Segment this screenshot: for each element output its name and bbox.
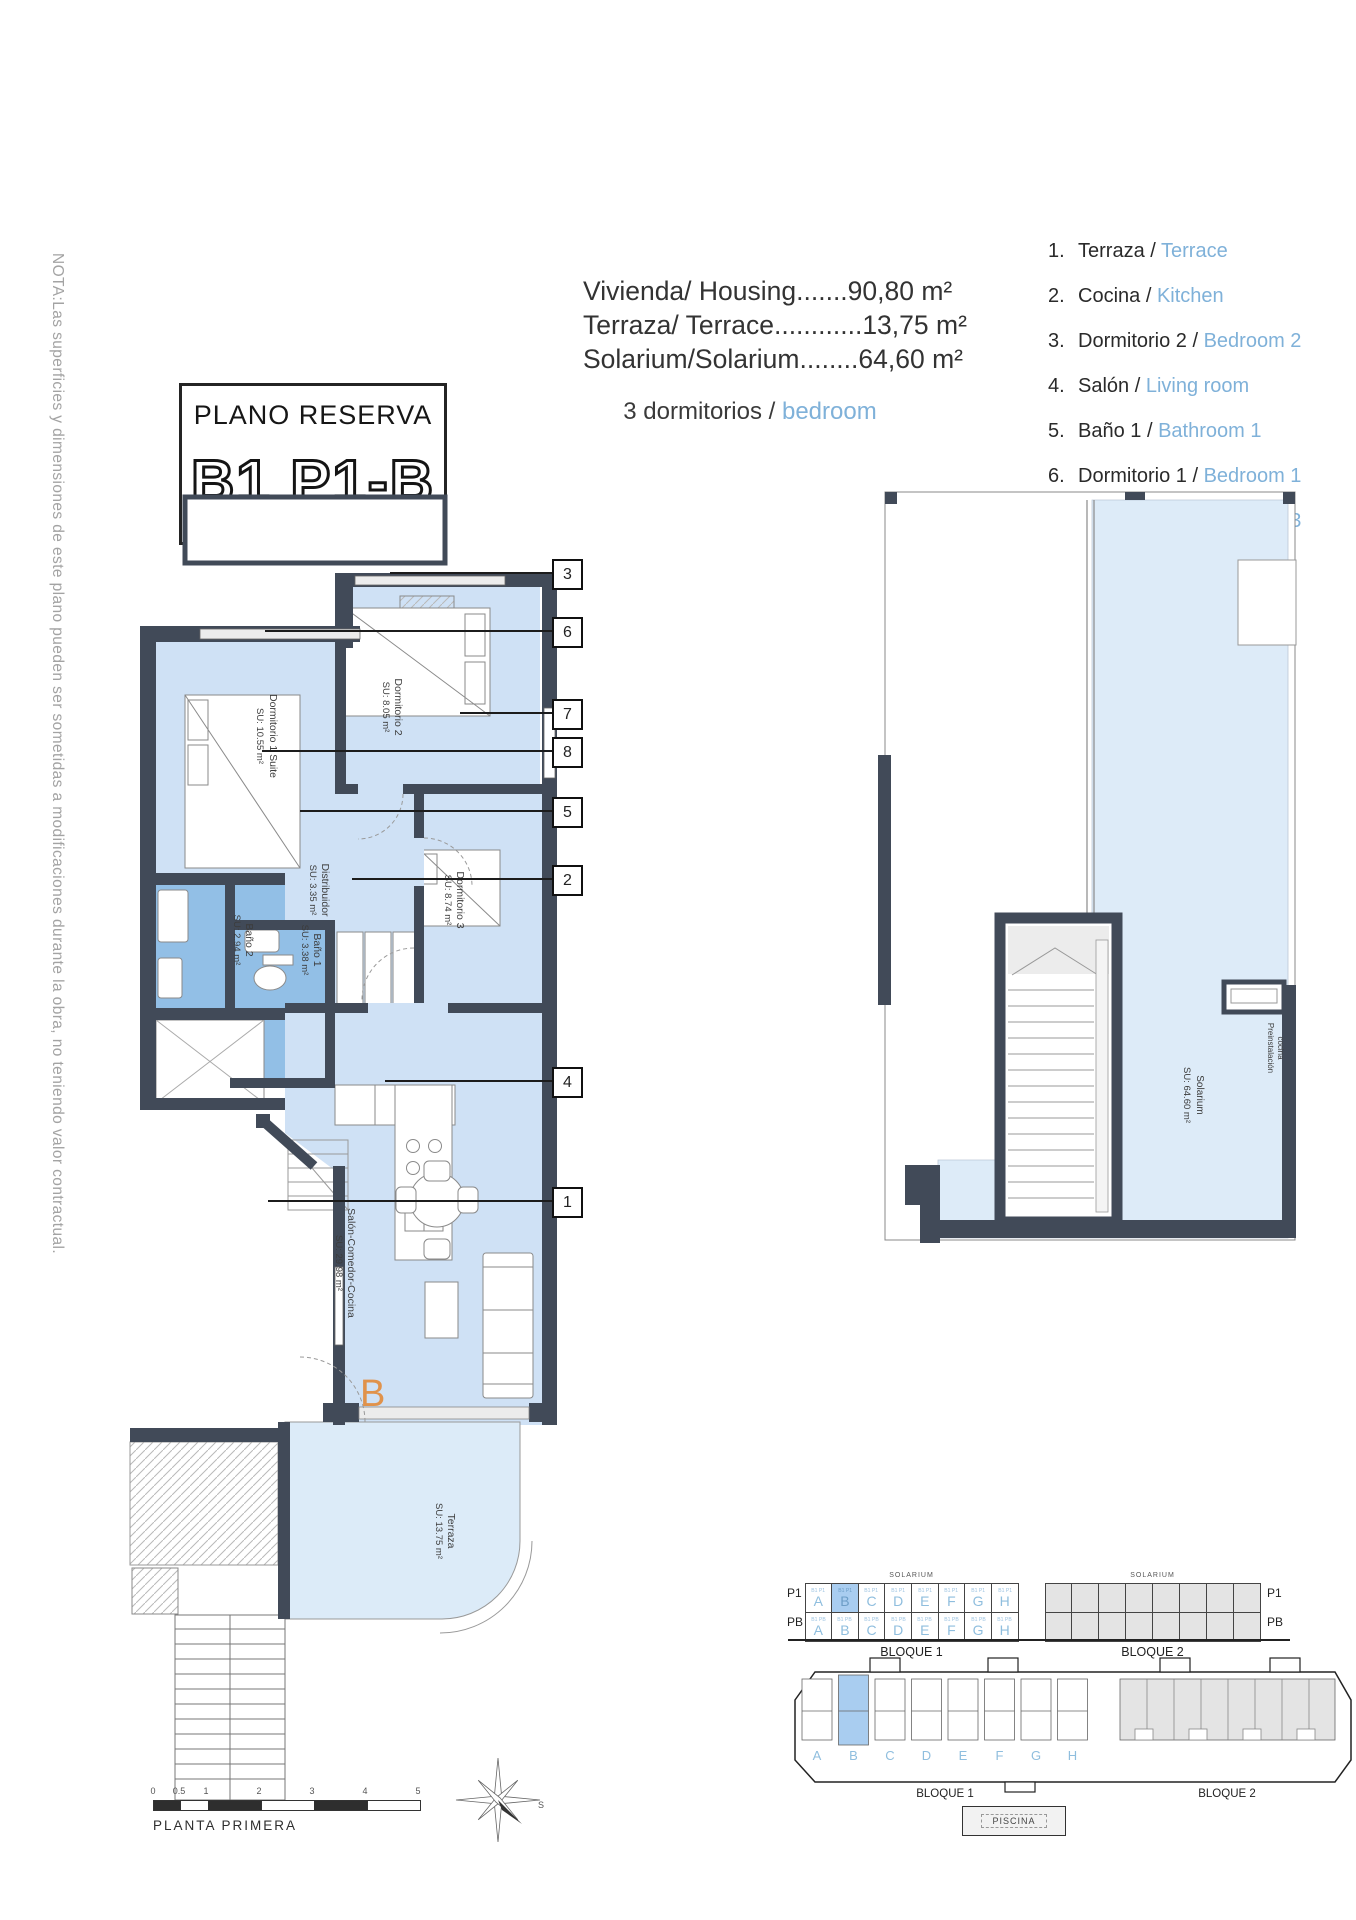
leader-line bbox=[265, 630, 552, 632]
unit-cell: B1 P1A bbox=[805, 1583, 833, 1613]
label-solarium-name: Solarium bbox=[1194, 1075, 1205, 1114]
legend-item-dormitorio2: 3.Dormitorio 2 / Bedroom 2 bbox=[1048, 330, 1301, 353]
site-bloque2-mass bbox=[1120, 1679, 1335, 1740]
label-dorm3-name: Dormitorio 3 bbox=[454, 871, 466, 928]
label-terraza-name: Terraza bbox=[445, 1513, 457, 1548]
label-bano1-name: Baño 1 bbox=[311, 933, 323, 966]
unit-cell: B1 PBF bbox=[938, 1612, 966, 1642]
unit-cell: B1 PBB bbox=[831, 1612, 859, 1642]
svg-text:E: E bbox=[959, 1748, 968, 1763]
solarium-floor-plan: Solarium SU: 64.60 m² Preinstalación coc… bbox=[750, 470, 1356, 1260]
unit-cell: B1 PBE bbox=[911, 1612, 939, 1642]
solarium-label-bloque1: SOLARIUM bbox=[805, 1572, 1018, 1579]
site-bloque2-label: BLOQUE 2 bbox=[1198, 1788, 1256, 1800]
bedrooms-es: 3 dormitorios / bbox=[623, 398, 782, 425]
unit-cell: B1 P1E bbox=[911, 1583, 939, 1613]
unit-cell: B1 P1F bbox=[938, 1583, 966, 1613]
piscina-box: PISCINA bbox=[962, 1806, 1066, 1836]
label-bano2-su: SU: 2.94 m² bbox=[231, 915, 242, 966]
label-salon-name: Salón-Comedor-Cocina bbox=[345, 1208, 357, 1318]
schematic-baseline bbox=[788, 1639, 1290, 1641]
callout-dormitorio3: 7 bbox=[552, 699, 583, 730]
svg-text:D: D bbox=[922, 1748, 931, 1763]
leader-line bbox=[385, 1080, 552, 1082]
unit-cell: B1 P1C bbox=[858, 1583, 886, 1613]
site-bloque1-label: BLOQUE 1 bbox=[916, 1788, 974, 1800]
leader-line bbox=[300, 810, 552, 812]
unit-cell: B1 P1H bbox=[991, 1583, 1019, 1613]
svg-text:F: F bbox=[996, 1748, 1004, 1763]
label-dorm2-name: Dormitorio 2 bbox=[392, 678, 404, 735]
leader-line bbox=[262, 750, 552, 752]
callout-bano2: 8 bbox=[552, 737, 583, 768]
label-solarium-su: SU: 64.60 m² bbox=[1181, 1067, 1192, 1123]
legend-item-terraza: 1.Terraza / Terrace bbox=[1048, 240, 1228, 263]
legend-item-salon: 4.Salón / Living room bbox=[1048, 375, 1249, 398]
area-table: Vivienda/ Housing.......90,80 m² Terraza… bbox=[583, 274, 967, 376]
svg-text:G: G bbox=[1031, 1748, 1041, 1763]
kitchen-preinstall-fixture bbox=[1224, 982, 1284, 1012]
leader-line bbox=[268, 1200, 552, 1202]
schematic-row-pb-right: PB bbox=[1267, 1615, 1283, 1629]
compass-south-label: S bbox=[538, 1800, 544, 1810]
leader-line bbox=[460, 712, 552, 714]
label-terraza-su: SU: 13.75 m² bbox=[433, 1503, 444, 1559]
callout-terraza: 1 bbox=[552, 1187, 583, 1218]
svg-text:C: C bbox=[885, 1748, 894, 1763]
callout-salon: 4 bbox=[552, 1067, 583, 1098]
unit-cell: B1 PBA bbox=[805, 1612, 833, 1642]
unit-cell: B1 PBC bbox=[858, 1612, 886, 1642]
piscina-label: PISCINA bbox=[981, 1814, 1046, 1828]
svg-text:H: H bbox=[1068, 1748, 1077, 1763]
callout-dormitorio2: 3 bbox=[552, 559, 583, 590]
floor-name-label: PLANTA PRIMERA bbox=[153, 1818, 297, 1833]
schematic-bloque1-grid: B1 P1A B1 P1B B1 P1C B1 P1D B1 P1E B1 P1… bbox=[805, 1583, 1018, 1641]
label-bano1-su: SU: 3.38 m² bbox=[299, 925, 310, 976]
compass-rose: S bbox=[450, 1752, 550, 1852]
solarium-label-bloque2: SOLARIUM bbox=[1045, 1572, 1260, 1579]
callout-bano1: 5 bbox=[552, 797, 583, 828]
label-bano2-name: Baño 2 bbox=[243, 923, 255, 956]
schematic-row-pb-left: PB bbox=[787, 1615, 803, 1629]
schematic-row-p1-left: P1 bbox=[787, 1586, 802, 1600]
label-dorm1-su: SU: 10.55 m² bbox=[254, 708, 265, 764]
scale-ticks: 0 0.5 1 2 3 4 5 bbox=[153, 1786, 419, 1798]
label-dorm2-su: SU: 8.05 m² bbox=[380, 682, 391, 733]
unit-cell: B1 PBG bbox=[964, 1612, 992, 1642]
label-dorm3-su: SU: 8.74 m² bbox=[442, 875, 453, 926]
unit-cell: B1 P1D bbox=[884, 1583, 912, 1613]
label-salon-su: SU: 29.98 m² bbox=[333, 1235, 344, 1291]
plan-title: PLANO RESERVA bbox=[182, 400, 444, 431]
stairwell bbox=[1000, 918, 1117, 1222]
apartment-floor-plan: Dormitorio 1 Suite SU: 10.55 m² Dormitor… bbox=[118, 478, 588, 1838]
callout-cocina: 2 bbox=[552, 865, 583, 896]
area-line-solarium: Solarium/Solarium........64,60 m² bbox=[583, 342, 967, 376]
scale-bar bbox=[153, 1800, 421, 1811]
disclaimer-note: NOTA:Las superficies y dimensiones de es… bbox=[48, 253, 66, 1373]
unit-cell: B1 P1G bbox=[964, 1583, 992, 1613]
legend-item-bano1: 5.Baño 1 / Bathroom 1 bbox=[1048, 420, 1261, 443]
svg-text:B: B bbox=[849, 1748, 858, 1763]
floor-plan-sheet: NOTA:Las superficies y dimensiones de es… bbox=[0, 0, 1356, 1920]
unit-cell: B1 PBD bbox=[884, 1612, 912, 1642]
label-cocina-note: cocina bbox=[1276, 1036, 1285, 1060]
leader-line bbox=[390, 572, 552, 574]
unit-cell-highlighted: B1 P1B bbox=[831, 1583, 859, 1613]
leader-line bbox=[352, 878, 552, 880]
label-distribuidor-name: Distribuidor bbox=[319, 863, 331, 917]
area-line-housing: Vivienda/ Housing.......90,80 m² bbox=[583, 274, 967, 308]
bedrooms-line: 3 dormitorios / bedroom bbox=[590, 398, 910, 426]
label-preinstalacion: Preinstalación bbox=[1266, 1023, 1275, 1073]
unit-cell: B1 PBH bbox=[991, 1612, 1019, 1642]
svg-text:A: A bbox=[813, 1748, 822, 1763]
legend-item-cocina: 2.Cocina / Kitchen bbox=[1048, 285, 1224, 308]
label-distribuidor-su: SU: 3.35 m² bbox=[307, 865, 318, 916]
label-dorm1-name: Dormitorio 1 Suite bbox=[267, 694, 279, 778]
unit-letter-mark: B bbox=[360, 1373, 385, 1415]
area-line-terrace: Terraza/ Terrace............13,75 m² bbox=[583, 308, 967, 342]
callout-dormitorio1: 6 bbox=[552, 617, 583, 648]
exterior-stairs bbox=[175, 1615, 285, 1800]
bedrooms-en: bedroom bbox=[782, 398, 877, 425]
schematic-bloque2-grid bbox=[1045, 1583, 1260, 1641]
schematic-row-p1-right: P1 bbox=[1267, 1586, 1282, 1600]
